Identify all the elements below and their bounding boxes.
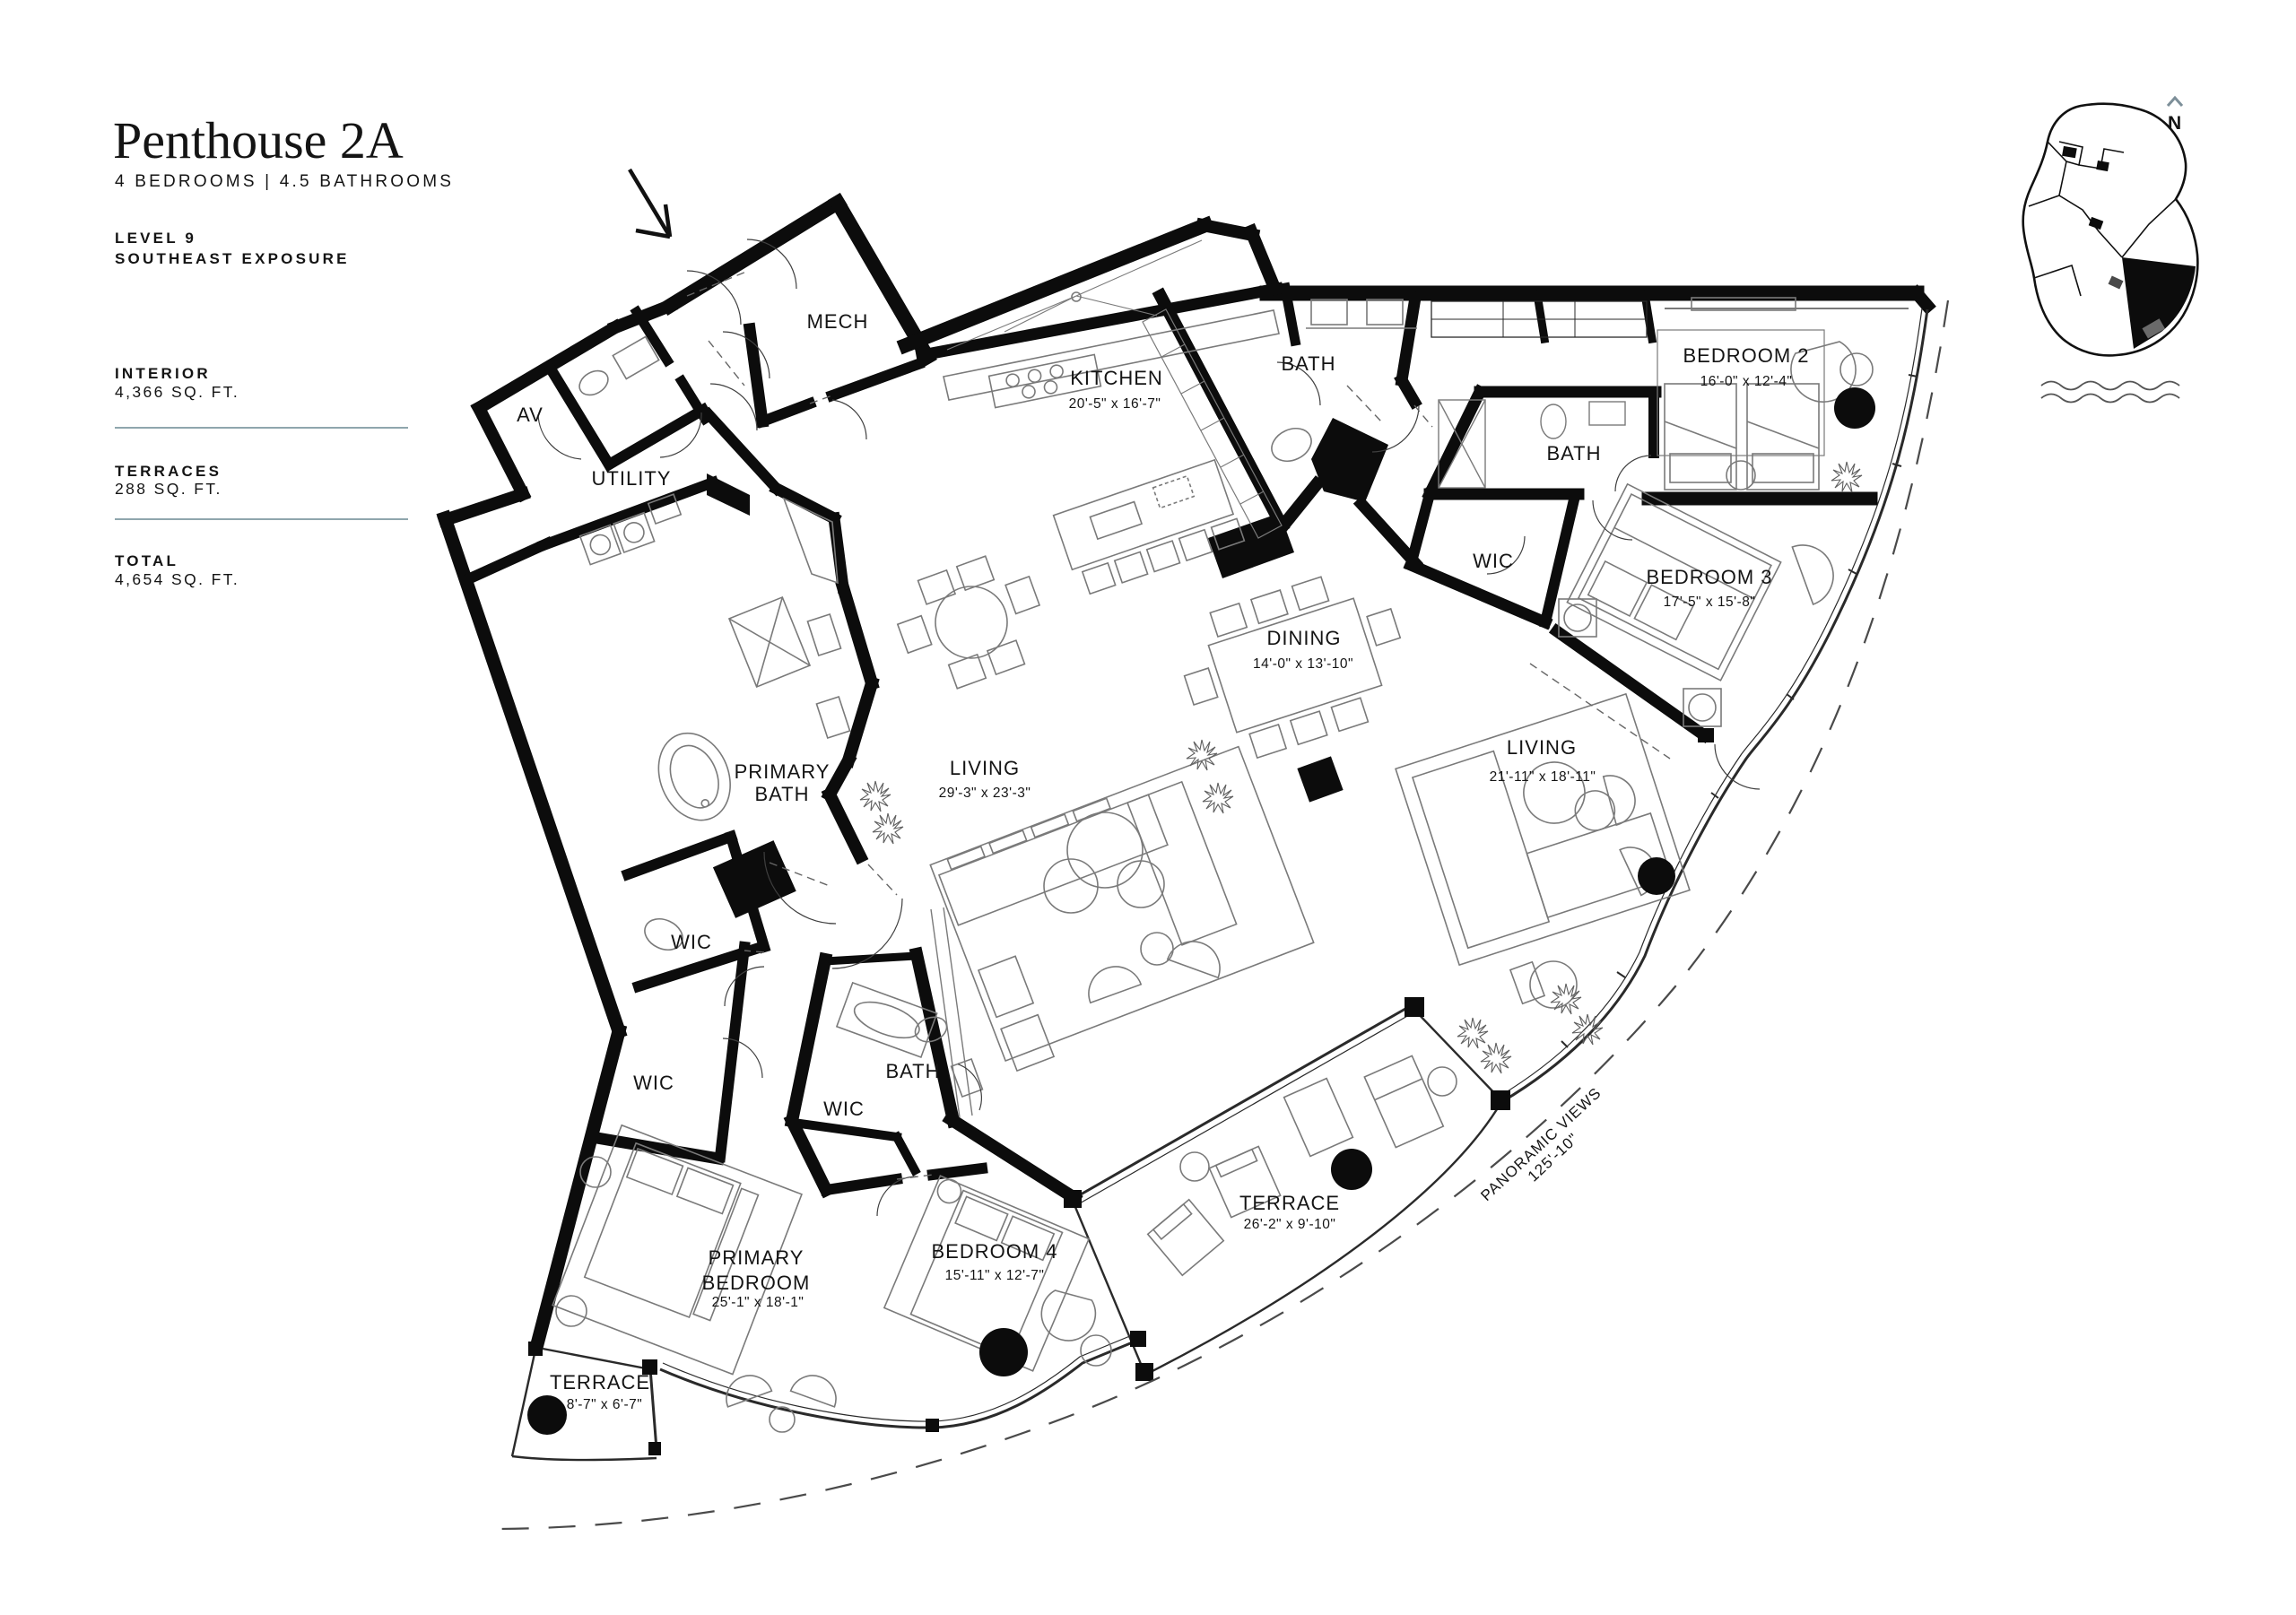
svg-text:Penthouse 2A: Penthouse 2A [113,111,404,169]
svg-text:14'-0" x 13'-10": 14'-0" x 13'-10" [1253,656,1353,672]
svg-text:4 BEDROOMS | 4.5 BATHROOMS: 4 BEDROOMS | 4.5 BATHROOMS [115,172,454,191]
svg-text:BEDROOM 4: BEDROOM 4 [931,1240,1057,1263]
svg-text:N: N [2168,113,2181,134]
svg-text:17'-5" x 15'-8": 17'-5" x 15'-8" [1664,595,1756,610]
svg-text:LIVING: LIVING [1507,736,1577,759]
svg-text:PRIMARY: PRIMARY [735,760,831,783]
svg-text:PRIMARY: PRIMARY [709,1246,804,1269]
svg-text:20'-5" x 16'-7": 20'-5" x 16'-7" [1069,396,1161,412]
svg-text:TOTAL: TOTAL [115,552,178,569]
svg-text:288 SQ. FT.: 288 SQ. FT. [115,480,222,498]
svg-text:KITCHEN: KITCHEN [1070,367,1163,389]
svg-text:INTERIOR: INTERIOR [115,365,211,382]
svg-text:BATH: BATH [1281,352,1335,375]
svg-text:WIC: WIC [671,931,712,953]
svg-text:AV: AV [517,404,544,426]
svg-text:21'-11" x 18'-11": 21'-11" x 18'-11" [1490,769,1596,785]
svg-text:WIC: WIC [823,1098,865,1120]
svg-text:LIVING: LIVING [950,757,1020,779]
svg-text:TERRACES: TERRACES [115,463,222,480]
svg-text:SOUTHEAST EXPOSURE: SOUTHEAST EXPOSURE [115,250,350,267]
svg-text:DINING: DINING [1267,627,1342,649]
svg-text:16'-0" x 12'-4": 16'-0" x 12'-4" [1700,374,1793,389]
svg-text:BATH: BATH [885,1060,940,1082]
svg-text:26'-2" x 9'-10": 26'-2" x 9'-10" [1244,1217,1336,1232]
svg-text:4,654 SQ. FT.: 4,654 SQ. FT. [115,570,239,588]
svg-text:8'-7" x 6'-7": 8'-7" x 6'-7" [567,1397,643,1412]
svg-text:15'-11" x 12'-7": 15'-11" x 12'-7" [945,1268,1045,1283]
svg-text:MECH: MECH [807,310,869,333]
svg-text:TERRACE: TERRACE [550,1371,650,1394]
svg-text:25'-1" x 18'-1": 25'-1" x 18'-1" [712,1295,804,1310]
svg-text:BATH: BATH [1546,442,1601,465]
svg-text:TERRACE: TERRACE [1239,1192,1340,1214]
svg-text:BEDROOM: BEDROOM [702,1272,811,1294]
svg-text:BATH: BATH [754,783,809,805]
svg-text:BEDROOM 3: BEDROOM 3 [1646,566,1772,588]
svg-text:4,366 SQ. FT.: 4,366 SQ. FT. [115,383,239,401]
svg-text:BEDROOM 2: BEDROOM 2 [1683,344,1809,367]
svg-text:LEVEL 9: LEVEL 9 [115,230,196,247]
svg-text:WIC: WIC [633,1072,674,1094]
svg-text:UTILITY: UTILITY [592,467,672,490]
svg-text:29'-3" x 23'-3": 29'-3" x 23'-3" [939,786,1031,801]
svg-text:WIC: WIC [1473,550,1514,572]
